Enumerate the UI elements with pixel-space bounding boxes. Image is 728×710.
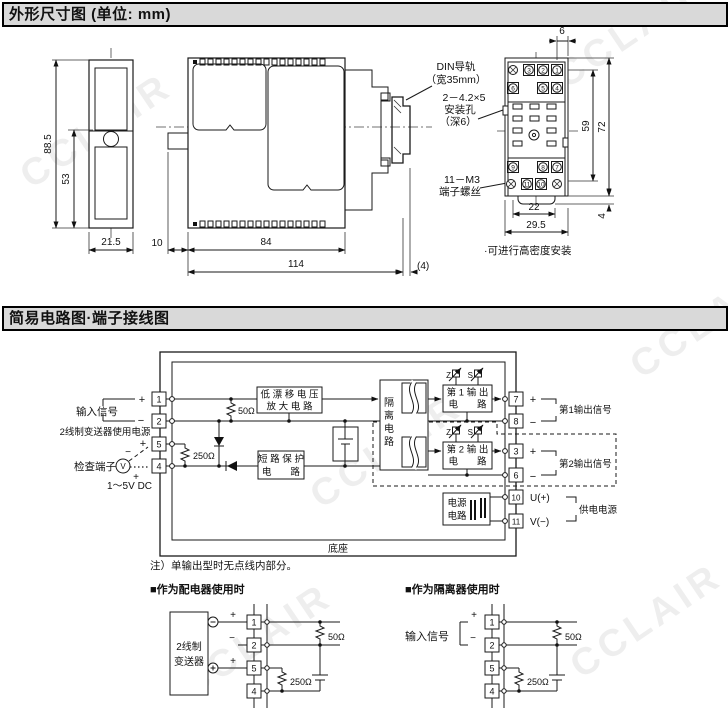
output1-label1: 第 1 输 出	[447, 387, 489, 399]
high-density-note: ·可进行高密度安装	[484, 244, 572, 257]
dim-53: 53	[61, 173, 72, 185]
terminal-number: 3	[527, 67, 531, 74]
amp-block-label1: 低 漂 移 电 压	[260, 389, 319, 401]
left-terminals: 1 2 5 4	[152, 392, 174, 473]
terminal-number: 1	[555, 67, 559, 74]
power-label2: 电路	[447, 510, 467, 522]
isolation-block: 隔 离 电 路	[380, 380, 428, 470]
terminal-number: 2	[489, 641, 494, 651]
drawing-canvas: 88.5 53 21.5	[0, 0, 728, 710]
terminal-number: 2	[541, 67, 545, 74]
voltmeter-icon: V	[120, 462, 126, 471]
plus-sign: +	[139, 394, 145, 406]
input-labels: + − + 输入信号 2线制变送器使用电源 检查端子 V − + 1～5V DC	[60, 394, 152, 492]
dim-4: 4	[597, 213, 608, 219]
sub1-title: ■作为配电器使用时	[150, 582, 245, 596]
output1-block: 第 1 输 出 电 路 Z S	[428, 368, 505, 423]
minus-sign: −	[470, 633, 476, 644]
mount-hole-label2: 安装孔	[444, 103, 476, 116]
zero-adjust-label: Z	[446, 428, 451, 437]
terminal-number: 5	[541, 85, 545, 92]
sub-circuit-distributor: ■作为配电器使用时 2线制 变送器 + − + 1 2 5 4 50Ω	[150, 582, 345, 708]
dim-84: 84	[260, 237, 272, 248]
resistor-50-label: 50Ω	[565, 632, 582, 642]
resistor-250-label: 250Ω	[193, 451, 215, 461]
capacitor	[333, 421, 358, 466]
front-view: 88.5 53 21.5	[43, 48, 133, 254]
resistor-250-label: 250Ω	[290, 677, 312, 687]
output1-signal-label: 第1输出信号	[559, 404, 612, 416]
terminal-number: 7	[555, 164, 559, 171]
plus-sign: +	[230, 656, 236, 667]
terminal-number: 5	[156, 440, 161, 450]
terminal-number: 8	[513, 417, 518, 427]
side-view: 10 84 114 (4)	[151, 58, 432, 276]
amp-block-label2: 放 大 电 路	[267, 401, 313, 413]
terminal-number: 4	[156, 462, 161, 472]
dim-88-5: 88.5	[43, 134, 54, 154]
terminal-screw-label1: 11－M3	[444, 174, 480, 186]
power-label1: 电源	[447, 497, 467, 509]
zero-adjust-label: Z	[446, 371, 451, 380]
u-plus-label: U(+)	[530, 493, 550, 504]
terminal-number: 8	[541, 164, 545, 171]
minus-sign: −	[138, 415, 144, 427]
dim-59: 59	[581, 120, 592, 132]
single-output-note: 注）单输出型时无点线内部分。	[150, 559, 297, 572]
minus-sign: −	[530, 417, 536, 429]
datasheet-page: CCLAIR CCLAIR CCLAIR CCLAIR CCLAIR CCLAI…	[0, 0, 728, 710]
short-protect-label1: 短 路 保 护	[258, 453, 304, 465]
terminal-number: 3	[513, 447, 518, 457]
terminal-number: 7	[513, 395, 518, 405]
check-terminal-label: 检查端子	[74, 460, 116, 473]
output2-label2: 电 路	[448, 456, 487, 468]
terminal-number: 10	[512, 494, 521, 503]
output2-signal-label: 第2输出信号	[559, 458, 612, 470]
main-circuit: 50Ω 250Ω 低 漂 移 电 压 放 大 电 路 短 路 保 护 电	[60, 352, 618, 556]
din-rail-width-label: （宽35mm）	[426, 73, 487, 86]
dim-22: 22	[528, 202, 540, 213]
input-signal-label: 输入信号	[405, 629, 449, 643]
terminal-number: 5	[489, 664, 494, 674]
resistor-50-label: 50Ω	[238, 406, 255, 416]
terminal-number: 9	[511, 164, 515, 171]
plus-sign: +	[530, 394, 536, 406]
terminal-number: 1	[156, 395, 161, 405]
dim-6: 6	[559, 26, 565, 37]
iso-char: 电	[384, 422, 394, 435]
dim-72: 72	[597, 121, 608, 133]
iso-char: 离	[384, 409, 394, 422]
base-label: 底座	[328, 542, 348, 555]
output2-label1: 第 2 输 出	[447, 444, 489, 456]
span-adjust-label: S	[468, 428, 473, 437]
supply-power-label: 供电电源	[579, 504, 618, 516]
output2-block: 第 2 输 出 电 路 Z S	[428, 425, 505, 477]
terminal-number: 11	[524, 181, 531, 188]
dim-29-5: 29.5	[526, 220, 546, 231]
output1-label2: 电 路	[448, 399, 487, 411]
input-signal-label: 输入信号	[76, 405, 118, 418]
check-voltage-label: 1～5V DC	[107, 481, 152, 492]
v-minus-label: V(−)	[530, 517, 549, 528]
mount-hole-label3: （深6）	[439, 116, 476, 128]
terminal-number: 4	[489, 687, 494, 697]
minus-sign: −	[125, 447, 131, 458]
sub-circuit-isolator: ■作为隔离器使用时 输入信号 + − 1 2 5 4 50Ω	[405, 582, 582, 708]
socket-rear-view: 3 2 1 6 5 4 9 8 7 11 10	[497, 26, 614, 236]
plus-sign: +	[230, 610, 236, 621]
terminal-number: 4	[555, 85, 559, 92]
iso-char: 隔	[384, 397, 394, 409]
terminal-number: 6	[513, 471, 518, 481]
mount-hole-label1: 2－4.2×5	[443, 92, 486, 104]
transmitter-label1: 2线制	[176, 640, 202, 653]
terminal-number: 10	[537, 181, 545, 188]
plus-sign: +	[471, 610, 477, 621]
dim-114: 114	[288, 259, 304, 270]
plus-sign: +	[530, 446, 536, 458]
dim-10: 10	[151, 238, 163, 249]
terminal-screw-label2: 端子螺丝	[439, 185, 481, 198]
resistor-250-label: 250Ω	[527, 677, 549, 687]
dim-21-5: 21.5	[101, 237, 121, 248]
terminal-number: 4	[251, 687, 256, 697]
transmitter-power-label: 2线制变送器使用电源	[60, 426, 151, 438]
output-labels: + − 第1输出信号 + − 第2输出信号 U(+) V(−) 供电电源	[530, 394, 618, 528]
terminal-number: 11	[512, 518, 521, 527]
right-terminals: 7 8 3 6 10 11	[503, 392, 523, 528]
terminal-number: 6	[511, 85, 515, 92]
short-protect-label2: 电 路	[262, 466, 301, 478]
resistor-50-label: 50Ω	[328, 632, 345, 642]
iso-char: 路	[384, 435, 394, 448]
terminal-number: 2	[251, 641, 256, 651]
terminal-number: 2	[156, 417, 161, 427]
minus-sign: −	[530, 471, 536, 483]
transmitter-label2: 变送器	[174, 655, 204, 668]
din-rail-label: DIN导轨	[436, 60, 476, 73]
span-adjust-label: S	[468, 371, 473, 380]
sub2-title: ■作为隔离器使用时	[405, 582, 500, 596]
dim-rail-depth: (4)	[417, 261, 429, 272]
terminal-number: 1	[251, 618, 256, 628]
terminal-number: 1	[489, 618, 494, 628]
power-block: 电源 电路	[443, 493, 505, 525]
minus-sign: −	[229, 633, 235, 644]
terminal-number: 5	[251, 664, 256, 674]
din-rail	[345, 70, 410, 210]
plus-sign: +	[140, 438, 146, 450]
